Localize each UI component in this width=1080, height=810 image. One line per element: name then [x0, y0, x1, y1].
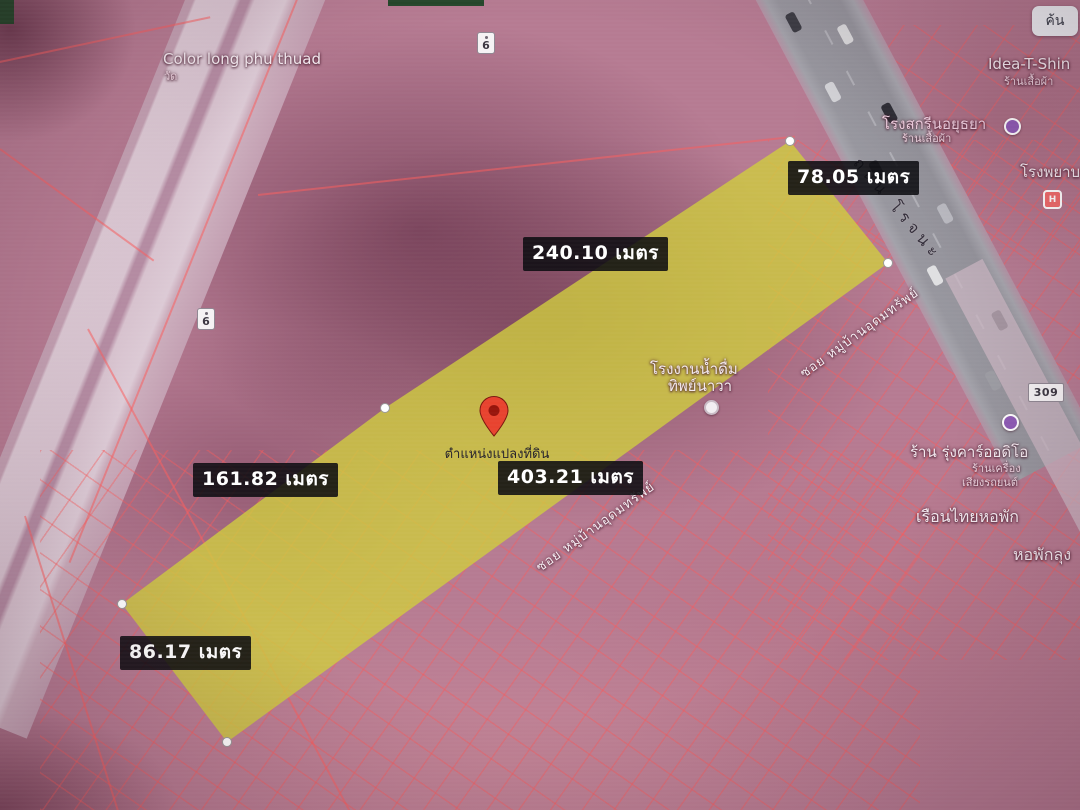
place-sublabel-rung-car-audio-2: เสียงรถยนต์	[962, 473, 1018, 491]
measurement-label-top: 78.05 เมตร	[788, 161, 919, 195]
place-label-ruean-thai-dorm[interactable]: เรือนไทยหอพัก	[916, 505, 1019, 530]
location-pin-icon[interactable]	[477, 395, 511, 437]
place-label-hospital[interactable]: โรงพยาบาล	[1020, 160, 1080, 184]
shop-marker-icon[interactable]	[1002, 414, 1019, 431]
measurement-label-bottom: 86.17 เมตร	[120, 636, 251, 670]
measurement-label-lower: 403.21 เมตร	[498, 461, 643, 495]
hospital-icon[interactable]: H	[1043, 190, 1062, 209]
measurement-label-upper: 240.10 เมตร	[523, 237, 668, 271]
factory-marker-icon[interactable]	[704, 400, 719, 415]
route-number: 309	[1034, 386, 1058, 399]
place-label-idea-t-shin[interactable]: Idea-T-Shin	[988, 55, 1070, 73]
route-number: 6	[202, 316, 210, 327]
map-canvas[interactable]: ถนน โรจนะ ซอย หมู่บ้านอุดมทรัพย์ ซอย หมู…	[0, 0, 1080, 810]
place-label-water-factory-line2: ทิพย์นาวา	[668, 374, 732, 398]
route-number: 6	[482, 40, 490, 51]
route-shield-309: 309	[1028, 383, 1064, 402]
measurement-label-left: 161.82 เมตร	[193, 463, 338, 497]
place-sublabel-screen-factory: ร้านเสื้อผ้า	[902, 129, 951, 147]
route-shield-6-top: 6	[477, 32, 495, 54]
place-sublabel-wat: วัด	[164, 67, 177, 85]
place-sublabel-idea-t-shin: ร้านเสื้อผ้า	[1004, 72, 1053, 90]
shop-marker-icon[interactable]	[1004, 118, 1021, 135]
place-label-color-long-phu-thuad[interactable]: Color long phu thuad	[163, 50, 321, 68]
route-shield-6-left: 6	[197, 308, 215, 330]
place-label-hopak-lung[interactable]: หอพักลุง	[1013, 543, 1071, 568]
hospital-glyph: H	[1049, 195, 1057, 205]
search-button[interactable]: ค้น	[1032, 6, 1078, 36]
